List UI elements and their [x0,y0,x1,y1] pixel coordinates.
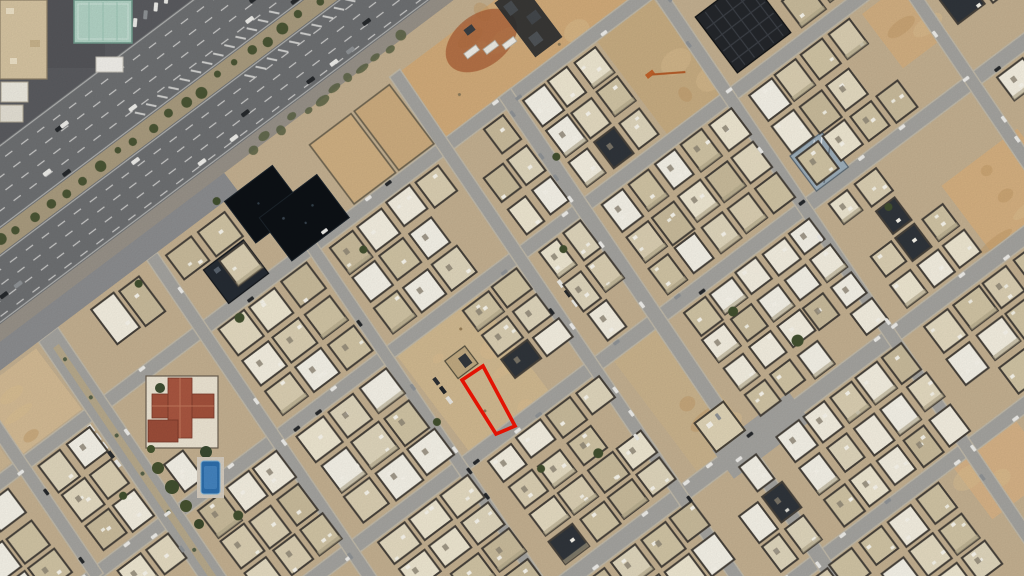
satellite-image [0,0,1024,576]
image-grain [0,0,1024,576]
satellite-map[interactable] [0,0,1024,576]
